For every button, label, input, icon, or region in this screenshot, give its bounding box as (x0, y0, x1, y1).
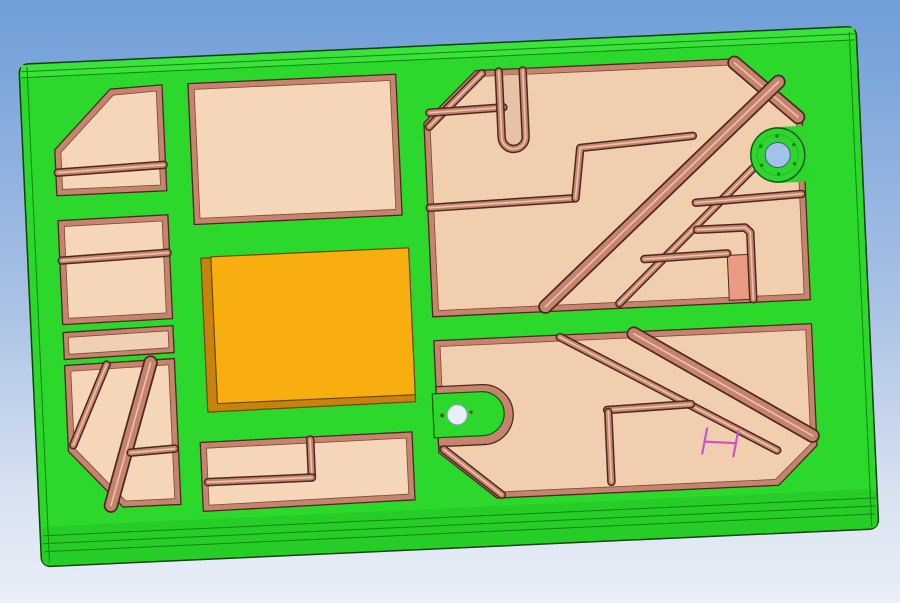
pocket-bottom-right[interactable] (430, 324, 819, 501)
pocket-floor[interactable] (194, 80, 396, 218)
pocket-floor[interactable] (64, 221, 166, 318)
machined-plate[interactable] (19, 26, 879, 566)
pocket-bottom-middle[interactable] (200, 432, 415, 512)
cad-viewport[interactable] (0, 0, 900, 603)
pocket-top-right[interactable] (422, 56, 815, 317)
pocket-top-middle[interactable] (188, 74, 402, 224)
orange-boss-top[interactable] (211, 248, 415, 404)
tab-through-hole[interactable] (447, 404, 468, 425)
orange-boss[interactable] (201, 248, 416, 412)
boss-through-hole[interactable] (765, 142, 791, 168)
pocket-left-middle[interactable] (58, 215, 173, 325)
